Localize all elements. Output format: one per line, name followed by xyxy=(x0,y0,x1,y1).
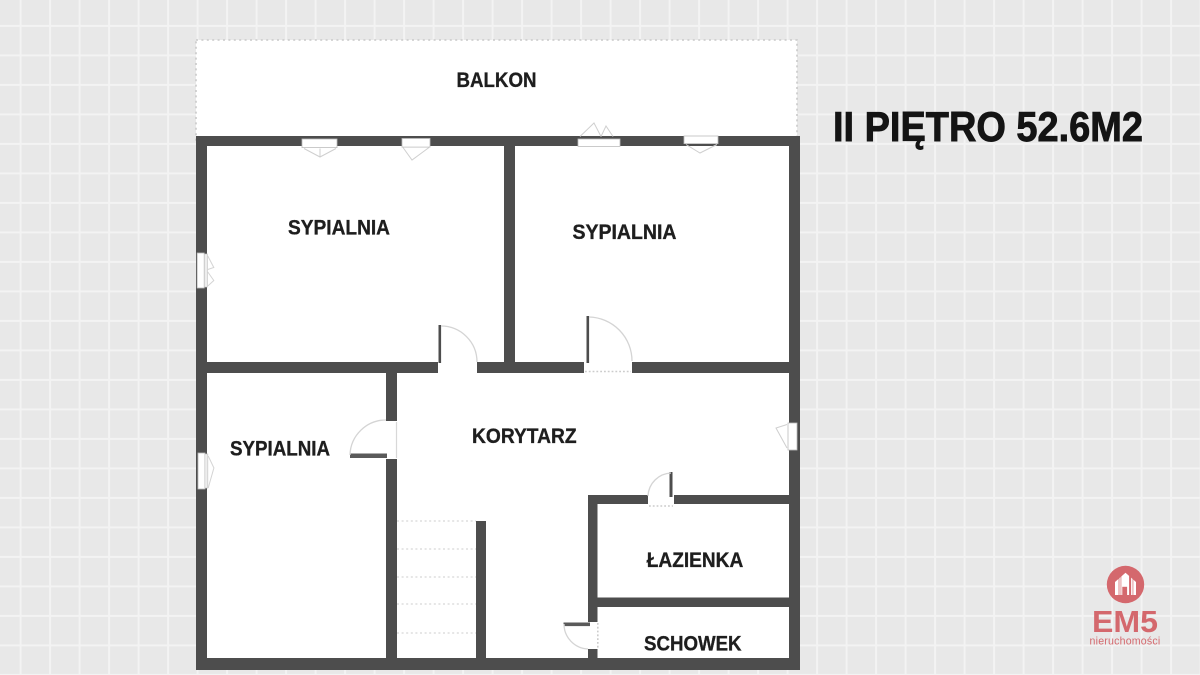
svg-text:II PIĘTRO 52.6M2: II PIĘTRO 52.6M2 xyxy=(833,103,1143,150)
svg-text:SCHOWEK: SCHOWEK xyxy=(644,632,742,656)
svg-text:BALKON: BALKON xyxy=(457,68,537,92)
svg-text:ŁAZIENKA: ŁAZIENKA xyxy=(647,548,744,572)
svg-text:nieruchomości: nieruchomości xyxy=(1090,636,1161,648)
svg-text:KORYTARZ: KORYTARZ xyxy=(472,424,577,448)
svg-text:SYPIALNIA: SYPIALNIA xyxy=(573,220,677,244)
svg-text:EM5: EM5 xyxy=(1092,605,1158,639)
svg-text:SYPIALNIA: SYPIALNIA xyxy=(230,437,330,461)
svg-text:SYPIALNIA: SYPIALNIA xyxy=(288,216,390,240)
